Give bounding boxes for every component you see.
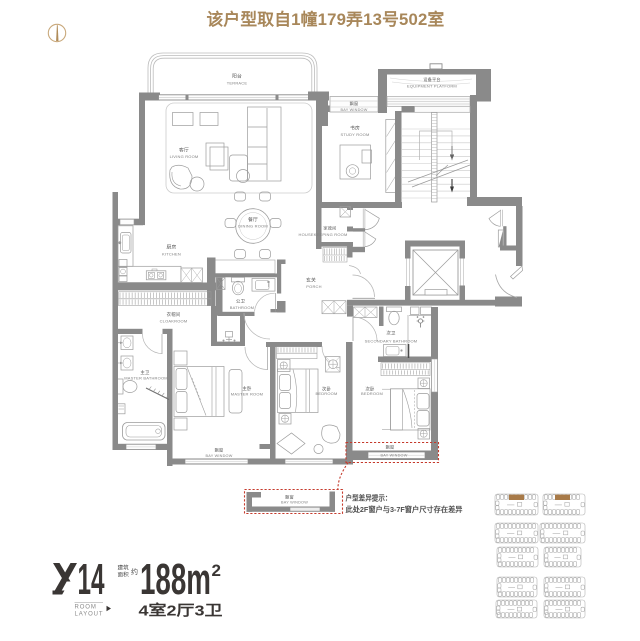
svg-text:BAY WINDOW: BAY WINDOW: [281, 501, 308, 505]
svg-text:书房: 书房: [350, 125, 360, 132]
svg-text:HOUSEKEEPING ROOM: HOUSEKEEPING ROOM: [299, 232, 348, 237]
svg-text:BAY WINDOW: BAY WINDOW: [381, 454, 408, 458]
svg-text:飘窗: 飘窗: [350, 100, 359, 107]
svg-text:LIVING ROOM: LIVING ROOM: [170, 154, 199, 159]
svg-text:188m: 188m: [140, 555, 211, 604]
svg-text:建筑: 建筑: [118, 564, 130, 572]
svg-text:公卫: 公卫: [236, 299, 246, 304]
svg-text:飘窗: 飘窗: [215, 447, 224, 454]
svg-text:LAYOUT: LAYOUT: [75, 612, 104, 618]
svg-text:厨房: 厨房: [167, 244, 177, 251]
svg-text:约: 约: [131, 567, 138, 576]
svg-text:BAY WINDOW: BAY WINDOW: [341, 108, 368, 112]
svg-text:飘窗: 飘窗: [386, 444, 395, 451]
svg-text:面积: 面积: [118, 571, 130, 579]
svg-text:主卫: 主卫: [140, 369, 150, 375]
svg-text:次卫: 次卫: [386, 329, 396, 336]
svg-text:户型差异提示：: 户型差异提示：: [346, 494, 392, 503]
svg-text:CLOAKROOM: CLOAKROOM: [160, 318, 188, 323]
svg-text:餐厅: 餐厅: [248, 216, 258, 223]
svg-text:该户型取自1幢179弄13号502室: 该户型取自1幢179弄13号502室: [207, 9, 445, 29]
svg-text:此处2F窗户与3-7F窗户尺寸存在差异: 此处2F窗户与3-7F窗户尺寸存在差异: [346, 505, 463, 514]
svg-text:STUDY ROOM: STUDY ROOM: [340, 132, 369, 137]
svg-text:MASTER BATHROOM: MASTER BATHROOM: [124, 376, 168, 381]
svg-text:KITCHEN: KITCHEN: [162, 252, 181, 257]
svg-text:BEDROOM: BEDROOM: [361, 391, 383, 396]
svg-text:衣帽间: 衣帽间: [167, 311, 181, 318]
svg-text:14: 14: [78, 555, 105, 604]
svg-text:阳台: 阳台: [232, 73, 242, 80]
svg-text:PORCH: PORCH: [306, 284, 321, 289]
svg-text:EQUIPMENT PLATFORM: EQUIPMENT PLATFORM: [407, 84, 457, 89]
svg-text:TERRACE: TERRACE: [227, 81, 248, 86]
svg-text:SECONDARY BATHROOM: SECONDARY BATHROOM: [365, 339, 418, 344]
svg-text:BEDROOM: BEDROOM: [315, 391, 337, 396]
svg-text:玄关: 玄关: [306, 277, 316, 284]
svg-text:DINING ROOM: DINING ROOM: [238, 224, 268, 229]
svg-text:客厅: 客厅: [179, 147, 189, 154]
svg-text:MASTER ROOM: MASTER ROOM: [231, 392, 263, 397]
svg-text:4室2厅3卫: 4室2厅3卫: [139, 602, 224, 620]
svg-text:BAY WINDOW: BAY WINDOW: [206, 454, 233, 458]
svg-text:家政间: 家政间: [323, 225, 336, 232]
svg-text:飘窗: 飘窗: [285, 493, 294, 500]
svg-text:设备平台: 设备平台: [423, 76, 441, 83]
svg-text:BATHROOM: BATHROOM: [230, 305, 254, 310]
svg-text:2: 2: [212, 561, 221, 580]
svg-text:ROOM: ROOM: [75, 605, 97, 611]
